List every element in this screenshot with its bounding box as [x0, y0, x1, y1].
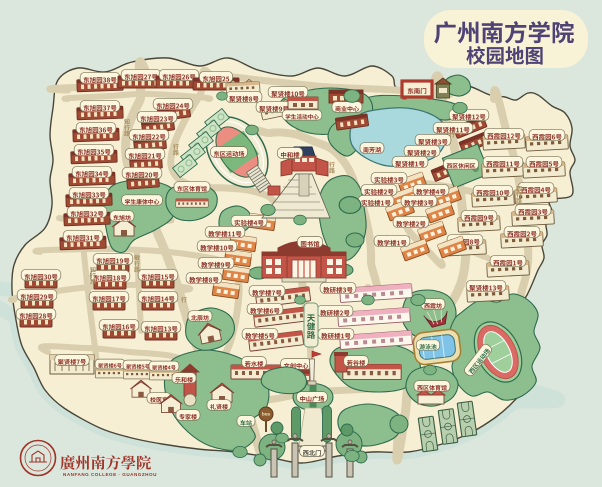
- svg-text:NANFANG COLLEGE · GUANGZHOU: NANFANG COLLEGE · GUANGZHOU: [63, 472, 157, 477]
- svg-text:bus: bus: [262, 412, 270, 417]
